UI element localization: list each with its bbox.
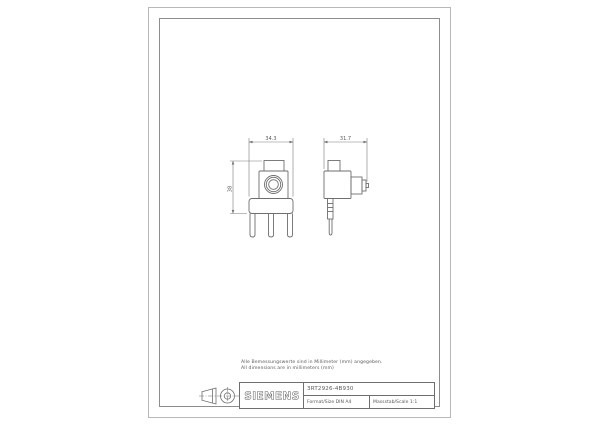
front-hole-outer	[265, 176, 283, 194]
side-pin-upper	[328, 199, 334, 220]
notes: Alle Bemessungswerte sind in Millimeter …	[241, 360, 391, 372]
side-top-terminal	[328, 161, 340, 172]
dimension-label: 34.3	[265, 136, 276, 142]
dimension-side-width: 31.7	[324, 136, 367, 182]
technical-drawing-canvas: 34.3 38	[149, 8, 452, 419]
scale-cell: Massstab/Scale 1:1	[370, 396, 434, 408]
side-connector-tip	[366, 184, 369, 188]
side-connector	[351, 177, 362, 194]
side-pin-tip	[329, 219, 332, 235]
front-hole-inner	[269, 180, 279, 190]
dimension-front-width: 34.3	[249, 136, 293, 197]
side-view-drawing	[324, 161, 369, 236]
side-connector-cap	[362, 180, 366, 191]
title-block: SIEMENS 3RT2926-4B930 Format/Size DIN A4…	[239, 382, 435, 409]
front-pin-left	[250, 214, 255, 238]
drawing-number: 3RT2926-4B930	[304, 383, 434, 396]
title-block-right: 3RT2926-4B930 Format/Size DIN A4 Masssta…	[304, 383, 434, 408]
screenshot-root: { "sheet": { "notes": { "line1": "Alle B…	[0, 0, 600, 425]
first-angle-projection-icon	[199, 387, 239, 405]
dimension-label: 31.7	[340, 136, 351, 142]
drawing-sheet: 34.3 38	[148, 7, 451, 418]
front-top-terminal	[264, 161, 284, 172]
side-body	[324, 171, 351, 199]
front-view-drawing	[249, 161, 293, 238]
front-pin-right	[288, 214, 293, 238]
front-pin-middle	[269, 214, 274, 238]
dimension-label: 38	[228, 186, 234, 192]
brand-logo: SIEMENS	[240, 383, 304, 408]
note-line-en: All dimensions are in millimeters (mm)	[241, 366, 391, 372]
brand-text: SIEMENS	[244, 391, 299, 403]
dimension-front-height: 38	[228, 161, 263, 214]
front-base	[249, 199, 293, 214]
format-cell: Format/Size DIN A4	[304, 396, 370, 408]
siemens-logo-icon: SIEMENS	[243, 388, 301, 403]
title-block-bottom-row: Format/Size DIN A4 Massstab/Scale 1:1	[304, 396, 434, 408]
